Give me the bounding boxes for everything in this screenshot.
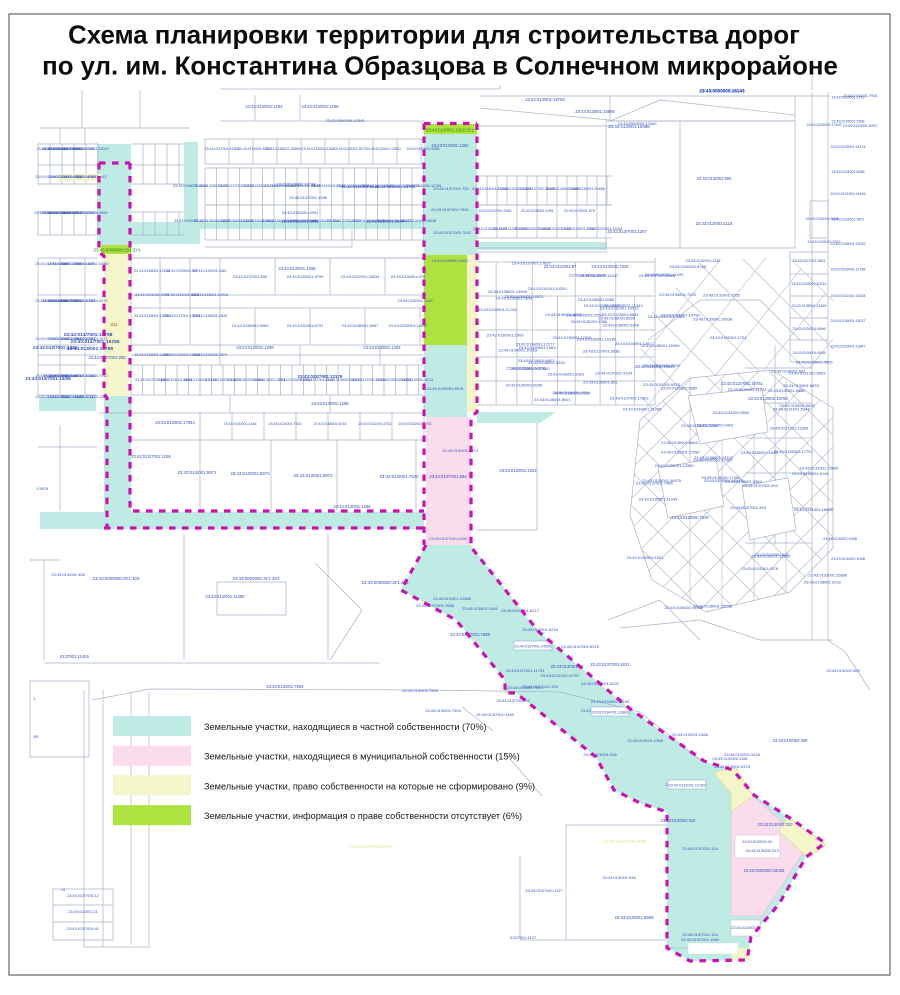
svg-text:23:43:0139001:2467: 23:43:0139001:2467 bbox=[193, 269, 227, 273]
svg-text:23:43:013/7001:494: 23:43:013/7001:494 bbox=[742, 483, 778, 488]
svg-text:23:43:0131001:14757: 23:43:0131001:14757 bbox=[541, 673, 581, 678]
svg-text:23:43:0138001:6521: 23:43:0138001:6521 bbox=[432, 258, 469, 263]
svg-text:23:43:013/7001:16756: 23:43:013/7001:16756 bbox=[71, 339, 120, 345]
svg-text:23:43:0132001:3071: 23:43:0132001:3071 bbox=[334, 147, 367, 151]
svg-text:23:43:0138001:5333: 23:43:0138001:5333 bbox=[528, 360, 565, 365]
svg-text:23:43:013/001:1294: 23:43:013/001:1294 bbox=[245, 104, 283, 109]
svg-text:23:43:0136001:8921: 23:43:0136001:8921 bbox=[534, 397, 571, 402]
svg-text:23:43:0135001:1724: 23:43:0135001:1724 bbox=[710, 335, 747, 340]
svg-text:23:43:013/001:1122: 23:43:013/001:1122 bbox=[397, 298, 433, 303]
svg-text:23:43:0138001:15138: 23:43:0138001:15138 bbox=[577, 337, 617, 342]
svg-text:23:43:0133001:8257: 23:43:0133001:8257 bbox=[843, 124, 878, 128]
svg-text:23:43:013/001:1091: 23:43:013/001:1091 bbox=[462, 606, 498, 611]
svg-text:23:43:013/7001:1127: 23:43:013/7001:1127 bbox=[525, 888, 563, 893]
svg-text:23:43:013/001:5699: 23:43:013/001:5699 bbox=[614, 915, 654, 920]
svg-text:23:43:013/001:7594: 23:43:013/001:7594 bbox=[425, 708, 461, 713]
svg-text:23:43:0139001:847: 23:43:0139001:847 bbox=[755, 552, 790, 557]
svg-text:23:43:0136001:15558: 23:43:0136001:15558 bbox=[693, 603, 733, 608]
svg-text:23:43:0000000:291:ЗУ1: 23:43:0000000:291:ЗУ1 bbox=[94, 248, 141, 253]
svg-text:23:43:013/001:5972: 23:43:013/001:5972 bbox=[293, 473, 333, 478]
svg-text:23:43:0135001:14581: 23:43:0135001:14581 bbox=[389, 323, 429, 328]
svg-text:23:43:0130001:11788: 23:43:0130001:11788 bbox=[831, 268, 866, 272]
svg-text:23:43:013/001:16690: 23:43:013/001:16690 bbox=[575, 109, 615, 114]
svg-text:23:43:013/001:11718: 23:43:013/001:11718 bbox=[276, 182, 316, 187]
svg-text:23:43:0135001:9985: 23:43:0135001:9985 bbox=[661, 385, 698, 390]
svg-text:23:43:0130001:1346: 23:43:0130001:1346 bbox=[224, 422, 257, 426]
svg-text:23:43:013/002:49: 23:43:013/002:49 bbox=[742, 840, 772, 844]
svg-text:23:43:0130001:2091: 23:43:0130001:2091 bbox=[282, 210, 319, 215]
svg-text:23:43:013/001:6833: 23:43:013/001:6833 bbox=[783, 383, 819, 388]
svg-text:23:43:0137001:830: 23:43:0137001:830 bbox=[233, 274, 268, 279]
svg-text:23:43:0137001:15358: 23:43:0137001:15358 bbox=[205, 147, 240, 151]
svg-text:23:43:0130001:13081: 23:43:0130001:13081 bbox=[366, 147, 401, 151]
svg-text:23:43:0000000:16143: 23:43:0000000:16143 bbox=[699, 89, 745, 94]
svg-text:23:43:013/001:7594: 23:43:013/001:7594 bbox=[507, 685, 543, 690]
svg-text:23:43:0133001:6146: 23:43:0133001:6146 bbox=[792, 471, 829, 476]
svg-text:23:43:013/7001:19751: 23:43:013/7001:19751 bbox=[721, 381, 764, 386]
svg-text:23:43:013/7001:14/08: 23:43:013/7001:14/08 bbox=[25, 376, 71, 381]
svg-text:23:43:013/001:1296: 23:43:013/001:1296 bbox=[278, 266, 316, 271]
svg-text:23:43:013/001:7620: 23:43:013/001:7620 bbox=[379, 474, 419, 479]
svg-text:23:43:013/002:309: 23:43:013/002:309 bbox=[826, 668, 860, 673]
svg-text:23:43:0000000:ЗУ1:403: 23:43:0000000:ЗУ1:403 bbox=[93, 576, 140, 581]
svg-text:23:43:0138001:11869: 23:43:0138001:11869 bbox=[792, 304, 827, 308]
svg-text:23:43:013/7001:1267: 23:43:013/7001:1267 bbox=[607, 229, 647, 234]
svg-text:23:43:0135001:14192: 23:43:0135001:14192 bbox=[694, 455, 734, 460]
svg-text:23:43:0139001:2974: 23:43:0139001:2974 bbox=[193, 353, 227, 357]
svg-text:23:43:0136001:12524: 23:43:0136001:12524 bbox=[134, 269, 170, 273]
svg-text:23:43:013/001:1292:ЗУ1: 23:43:013/001:1292:ЗУ1 bbox=[426, 128, 475, 133]
svg-text:23:43:0138001:16969: 23:43:0138001:16969 bbox=[641, 343, 681, 348]
svg-text:23:43:0131001:4488: 23:43:0131001:4488 bbox=[768, 388, 805, 393]
svg-text:23:43:013/7001:12: 23:43:013/7001:12 bbox=[67, 894, 99, 898]
svg-text:23:43:0135001:14310: 23:43:0135001:14310 bbox=[506, 366, 546, 371]
svg-text:23:43:0134001:7945: 23:43:0134001:7945 bbox=[843, 94, 878, 98]
svg-text:23:43:0138001:5485: 23:43:0138001:5485 bbox=[578, 297, 615, 302]
svg-text:23:43:0139001:11273: 23:43:0139001:11273 bbox=[728, 387, 767, 392]
svg-text:23:43:0000000:ЗУ1:403: 23:43:0000000:ЗУ1:403 bbox=[233, 576, 280, 581]
svg-text:23:43:0138001:5657: 23:43:0138001:5657 bbox=[342, 323, 379, 328]
svg-text:23:43:0131001:16895: 23:43:0131001:16895 bbox=[794, 507, 834, 512]
svg-text:23:43:013/001:1296: 23:43:013/001:1296 bbox=[311, 401, 349, 406]
svg-text:23:43:013/001:5973: 23:43:013/001:5973 bbox=[230, 471, 270, 476]
svg-text:23:43:0131001:10253: 23:43:0131001:10253 bbox=[528, 286, 568, 291]
svg-text:23:43:0131001:2932: 23:43:0131001:2932 bbox=[359, 422, 392, 426]
svg-text:1.5976: 1.5976 bbox=[36, 486, 49, 491]
svg-text:23:43:013/7001:1084: 23:43:013/7001:1084 bbox=[681, 937, 720, 942]
svg-text:23:43:0137001:14005: 23:43:0137001:14005 bbox=[515, 645, 552, 649]
svg-text:ЗФ: ЗФ bbox=[33, 734, 38, 739]
svg-text:23:43:0139001:576: 23:43:0139001:576 bbox=[564, 209, 595, 213]
svg-text:23:43:0131001:7392: 23:43:0131001:7392 bbox=[269, 422, 302, 426]
svg-text:23:43:013/001:12488: 23:43:013/001:12488 bbox=[433, 596, 472, 601]
svg-text:23:43:013/7001:6221: 23:43:013/7001:6221 bbox=[590, 662, 630, 667]
svg-text:23:43:013/001:67: 23:43:013/001:67 bbox=[544, 264, 577, 269]
svg-text:23:43:0132001:3184: 23:43:0132001:3184 bbox=[301, 147, 334, 151]
svg-text:23:43:0131001:7355: 23:43:0131001:7355 bbox=[703, 293, 740, 298]
svg-text:23:43:0131001:13354: 23:43:0131001:13354 bbox=[770, 426, 810, 431]
svg-text:23:43:0134001:11268: 23:43:0134001:11268 bbox=[623, 407, 662, 412]
svg-text:23:43:0137001:17302: 23:43:0137001:17302 bbox=[610, 396, 650, 401]
svg-text:23:43:013/7001:1489: 23:43:013/7001:1489 bbox=[476, 712, 515, 717]
svg-text:23:43:0131001:10809: 23:43:0131001:10809 bbox=[799, 466, 839, 471]
svg-text:14: 14 bbox=[61, 888, 65, 892]
svg-text:23:43:0132001:7584: 23:43:0132001:7584 bbox=[42, 147, 78, 151]
svg-text:23:43:0131001:15896: 23:43:0131001:15896 bbox=[808, 573, 848, 578]
svg-text:23:43:013/002:6378: 23:43:013/002:6378 bbox=[714, 764, 750, 769]
svg-text:23:43:013/002:310: 23:43:013/002:310 bbox=[758, 822, 794, 827]
svg-text:23:43:013/7001:7542: 23:43:013/7001:7542 bbox=[433, 230, 472, 235]
svg-text:23:43:0134001:470: 23:43:0134001:470 bbox=[391, 274, 426, 279]
svg-text:23:43:013/001:6832: 23:43:013/001:6832 bbox=[779, 403, 815, 408]
svg-text:23:43:0135001:16638: 23:43:0135001:16638 bbox=[693, 317, 733, 322]
svg-text:23:43:013/7001:6217: 23:43:013/7001:6217 bbox=[501, 608, 540, 613]
svg-text:23:43:0131001:8920: 23:43:0131001:8920 bbox=[341, 184, 379, 189]
svg-text:23:43:0134001:7059: 23:43:0134001:7059 bbox=[42, 299, 77, 303]
svg-text:23:43:0130001:15658: 23:43:0130001:15658 bbox=[569, 187, 605, 191]
svg-text:23:43:0137001:16034: 23:43:0137001:16034 bbox=[341, 274, 381, 279]
svg-text:23:43:013/001:948: 23:43:013/001:948 bbox=[602, 875, 636, 880]
svg-text:23:43:0136001:1009: 23:43:0136001:1009 bbox=[487, 332, 524, 337]
svg-text:23:43:013/001:16750: 23:43:013/001:16750 bbox=[525, 97, 565, 102]
svg-text:23:43:0138001:9463: 23:43:0138001:9463 bbox=[697, 422, 734, 427]
svg-text:23:43:0132001:13019: 23:43:0132001:13019 bbox=[74, 147, 109, 151]
svg-text:23:43:0000000:ЗУ1:403: 23:43:0000000:ЗУ1:403 bbox=[362, 580, 409, 585]
svg-text:23:43:013/002:309: 23:43:013/002:309 bbox=[773, 738, 809, 743]
svg-text:23:43:013/001:21: 23:43:013/001:21 bbox=[68, 910, 98, 914]
svg-text:23:43:013/7001:6219: 23:43:013/7001:6219 bbox=[561, 644, 600, 649]
svg-text:23:43:013/001:7594: 23:43:013/001:7594 bbox=[402, 688, 438, 693]
svg-text:23:43:0136001:861: 23:43:0136001:861 bbox=[583, 380, 618, 385]
svg-text:23:43:013/002:1098: 23:43:013/002:1098 bbox=[831, 557, 865, 561]
svg-text:23:43:013/001:326: 23:43:013/001:326 bbox=[583, 752, 617, 757]
svg-text:23:43:0132001:7912: 23:43:0132001:7912 bbox=[808, 240, 841, 244]
svg-text:23:43:013/001:1299: 23:43:013/001:1299 bbox=[236, 345, 274, 350]
svg-text:23:43:0135001:6035: 23:43:0135001:6035 bbox=[505, 382, 542, 387]
svg-text:23:43:0138001:9218: 23:43:0138001:9218 bbox=[314, 422, 347, 426]
svg-text:23:43:0139001:4571: 23:43:0139001:4571 bbox=[552, 390, 589, 395]
svg-text:23:43:0134001:10653: 23:43:0134001:10653 bbox=[498, 348, 538, 353]
svg-text:23:43:0000000:16063: 23:43:0000000:16063 bbox=[744, 868, 785, 873]
svg-text:23:43:0132001:2353: 23:43:0132001:2353 bbox=[75, 395, 108, 399]
svg-text:23:43:0135001:17757: 23:43:0135001:17757 bbox=[774, 449, 814, 454]
svg-text:23:43:0137001:2529: 23:43:0137001:2529 bbox=[42, 211, 77, 215]
svg-text:23:43:013/7001:594: 23:43:013/7001:594 bbox=[429, 474, 467, 479]
svg-text:23:43:0133001:3799: 23:43:0133001:3799 bbox=[287, 274, 324, 279]
svg-text:23:43:0137001:3831: 23:43:0137001:3831 bbox=[793, 259, 826, 263]
svg-text:23:43:013/7001:1342: 23:43:013/7001:1342 bbox=[33, 345, 78, 350]
svg-text:23:43:0139001:6326: 23:43:0139001:6326 bbox=[793, 351, 826, 355]
svg-text:23:43:013/001:408: 23:43:013/001:408 bbox=[51, 572, 85, 577]
svg-text:23:43:0132001:15519: 23:43:0132001:15519 bbox=[600, 305, 640, 310]
svg-text:23:43:013/7001:752: 23:43:013/7001:752 bbox=[433, 186, 469, 191]
svg-text:23:43:0131001:1578: 23:43:0131001:1578 bbox=[742, 566, 779, 571]
svg-text:23:43:0135001:17492: 23:43:0135001:17492 bbox=[807, 123, 842, 127]
svg-text:23:43:0000000:12540: 23:43:0000000:12540 bbox=[326, 118, 366, 123]
svg-text:23:43:013/001:19750: 23:43:013/001:19750 bbox=[748, 396, 788, 401]
svg-text:23:43:0138001:15689: 23:43:0138001:15689 bbox=[265, 147, 300, 151]
svg-text:Земельные участки, находящиеся: Земельные участки, находящиеся в муницип… bbox=[204, 752, 520, 762]
svg-text:23:43:013/001:1296: 23:43:013/001:1296 bbox=[301, 104, 339, 109]
svg-text:23:43:0133001:14174: 23:43:0133001:14174 bbox=[831, 145, 866, 149]
svg-text:23:43:0131001:6939: 23:43:0131001:6939 bbox=[75, 211, 108, 215]
svg-text:23:43:013/002:1098: 23:43:013/002:1098 bbox=[823, 537, 857, 541]
svg-text:23:43:0134001:17360: 23:43:0134001:17360 bbox=[701, 475, 741, 480]
svg-text:23:43:013/002:1184: 23:43:013/002:1184 bbox=[712, 756, 748, 761]
svg-text:23:43:0137001:2645: 23:43:0137001:2645 bbox=[479, 209, 512, 213]
svg-text:23:43:0130001:9213: 23:43:0130001:9213 bbox=[399, 378, 433, 382]
svg-text:23:43:0133001:11183: 23:43:0133001:11183 bbox=[591, 699, 630, 704]
svg-text:23:43:013/001:1292: 23:43:013/001:1292 bbox=[431, 143, 469, 148]
svg-text:23:43:0139001:1501: 23:43:0139001:1501 bbox=[627, 555, 664, 560]
svg-text:23:43:013/7001:1198: 23:43:013/7001:1198 bbox=[429, 536, 467, 541]
svg-text:23:43:013/7001:12179: 23:43:013/7001:12179 bbox=[298, 374, 343, 379]
svg-text:23:43:013/001:17943: 23:43:013/001:17943 bbox=[155, 420, 195, 425]
svg-text:23:43:0138001:8505: 23:43:0138001:8505 bbox=[598, 316, 635, 321]
svg-text:23:43:013/001:1368: 23:43:013/001:1368 bbox=[672, 732, 708, 737]
svg-text:23:43:0137001:3536: 23:43:0137001:3536 bbox=[583, 349, 620, 354]
svg-text:по ул. им. Константина Образцо: по ул. им. Константина Образцова в Солне… bbox=[42, 53, 838, 81]
svg-text:23:43:013/001:1368: 23:43:013/001:1368 bbox=[627, 738, 663, 743]
svg-text:23:43:0135001:9964: 23:43:0135001:9964 bbox=[232, 323, 269, 328]
svg-text:23:43:0130001:5765: 23:43:0130001:5765 bbox=[669, 264, 706, 269]
svg-text:23:43:013/7001:494: 23:43:013/7001:494 bbox=[730, 505, 766, 510]
svg-text:23:43:013/001:5971: 23:43:013/001:5971 bbox=[177, 470, 217, 475]
svg-text:Земельные участки, право собст: Земельные участки, право собственности н… bbox=[204, 781, 535, 791]
svg-text:23:43:013/002:313: 23:43:013/002:313 bbox=[745, 848, 779, 853]
svg-text:23:43:0136001:1091: 23:43:0136001:1091 bbox=[521, 209, 554, 213]
svg-text:23:43:013/7001:1296: 23:43:013/7001:1296 bbox=[131, 454, 171, 459]
svg-text:23:43:0130001:4505: 23:43:0130001:4505 bbox=[796, 360, 833, 365]
svg-text:23:43:0138001:2018: 23:43:0138001:2018 bbox=[804, 579, 841, 584]
svg-text:23:43:0132001:12189: 23:43:0132001:12189 bbox=[669, 784, 706, 788]
svg-text:23:43:0132001:6737: 23:43:0132001:6737 bbox=[287, 323, 324, 328]
svg-text:23:43:013/001:7619: 23:43:013/001:7619 bbox=[671, 515, 709, 520]
svg-text:23:43:013/7001:5808: 23:43:013/7001:5808 bbox=[349, 844, 393, 849]
svg-text:23:43:0131001:3070: 23:43:0131001:3070 bbox=[135, 293, 169, 297]
svg-text:23:43:0137001:11703: 23:43:0137001:11703 bbox=[506, 668, 545, 673]
svg-text:23:43:0136001:1829: 23:43:0136001:1829 bbox=[741, 450, 778, 455]
svg-text:23:43:0134001:9800: 23:43:0134001:9800 bbox=[712, 410, 749, 415]
svg-text:013/7001:1127: 013/7001:1127 bbox=[510, 935, 537, 940]
svg-text:Земельные участки, информация: Земельные участки, информация о праве со… bbox=[204, 811, 522, 821]
svg-text:23:43:0130001:5875: 23:43:0130001:5875 bbox=[366, 219, 404, 224]
svg-text:23:43:0134001:413: 23:43:0134001:413 bbox=[76, 175, 107, 179]
svg-text:23:43:0132001:9606: 23:43:0132001:9606 bbox=[806, 217, 839, 221]
svg-text:23:43:0136001:14704: 23:43:0136001:14704 bbox=[375, 184, 415, 189]
svg-text:23:43:0131001:12004: 23:43:0131001:12004 bbox=[831, 294, 866, 298]
svg-text:23:43:013/7001:41: 23:43:013/7001:41 bbox=[67, 927, 99, 931]
svg-text:23:43:0130001:8978: 23:43:0130001:8978 bbox=[427, 386, 464, 391]
svg-text:23:43:013/7001:5809: 23:43:013/7001:5809 bbox=[603, 839, 647, 844]
svg-text:23:43:0136001:15027: 23:43:0136001:15027 bbox=[831, 319, 866, 323]
svg-text:23:43:0130001:6662: 23:43:0130001:6662 bbox=[661, 440, 698, 445]
svg-text:23:43:0132001:7792: 23:43:0132001:7792 bbox=[399, 422, 432, 426]
svg-text:23:43:013/7001:7541: 23:43:013/7001:7541 bbox=[431, 207, 470, 212]
svg-text:23:43:0135001:13380: 23:43:0135001:13380 bbox=[655, 463, 695, 468]
svg-text:0137001:11426: 0137001:11426 bbox=[60, 654, 89, 659]
svg-text:23:43:0135001:11939: 23:43:0135001:11939 bbox=[639, 497, 678, 502]
svg-text:23:43:0138001:8310: 23:43:0138001:8310 bbox=[548, 372, 585, 377]
svg-text:23:43:0133001:2081: 23:43:0133001:2081 bbox=[281, 219, 319, 224]
svg-text:23:43:0131001:13038: 23:43:0131001:13038 bbox=[400, 219, 436, 223]
svg-text:23:43:0131001:15446: 23:43:0131001:15446 bbox=[831, 192, 866, 196]
svg-text:23:43:0130001:12447: 23:43:0130001:12447 bbox=[579, 273, 619, 278]
svg-text:311: 311 bbox=[110, 322, 118, 327]
svg-text:23:43:0134001:11429: 23:43:0134001:11429 bbox=[645, 272, 684, 277]
svg-text:23:43:0131001:7089: 23:43:0131001:7089 bbox=[648, 314, 685, 319]
svg-text:23:43:013/7001:292: 23:43:013/7001:292 bbox=[88, 355, 126, 360]
svg-text:23:43:0137001:7086: 23:43:0137001:7086 bbox=[636, 481, 673, 486]
svg-text:23:43:0138001:10212: 23:43:0138001:10212 bbox=[792, 282, 827, 286]
svg-text:23:43:0138001:2845: 23:43:0138001:2845 bbox=[193, 314, 227, 318]
svg-text:Земельные участки, находящиеся: Земельные участки, находящиеся в частной… bbox=[204, 722, 487, 732]
svg-text:23:43:013/001:1022: 23:43:013/001:1022 bbox=[499, 468, 537, 473]
svg-text:23:43:013/001:995: 23:43:013/001:995 bbox=[697, 176, 733, 181]
svg-text:23:43:013/7001:1296: 23:43:013/7001:1296 bbox=[289, 195, 328, 200]
svg-text:23:43:013/7001:104: 23:43:013/7001:104 bbox=[682, 846, 718, 851]
svg-text:23:43:0136001:681: 23:43:0136001:681 bbox=[771, 368, 806, 373]
svg-text:23:43:0133001:8275: 23:43:0133001:8275 bbox=[75, 299, 108, 303]
svg-text:23:43:013/001:1296: 23:43:013/001:1296 bbox=[333, 504, 371, 509]
svg-text:23:43:0136001:10918: 23:43:0136001:10918 bbox=[192, 293, 228, 297]
svg-text:23:43:0132001:17567: 23:43:0132001:17567 bbox=[661, 449, 701, 454]
svg-text:23:43:013/001:1302: 23:43:013/001:1302 bbox=[363, 345, 401, 350]
svg-text:23:43:0139001:11706: 23:43:0139001:11706 bbox=[478, 307, 517, 312]
svg-text:23:43:0137001:3154: 23:43:0137001:3154 bbox=[595, 370, 632, 375]
svg-text:23:43:013/001:1118: 23:43:013/001:1118 bbox=[686, 258, 722, 263]
svg-text:23:43:013/001:7330: 23:43:013/001:7330 bbox=[591, 264, 629, 269]
svg-text:23:43:013/001:5973: 23:43:013/001:5973 bbox=[442, 448, 478, 453]
svg-text:23:43:0138001:14523: 23:43:0138001:14523 bbox=[504, 294, 544, 299]
svg-text:23:43:0134001:8996: 23:43:0134001:8996 bbox=[793, 327, 826, 331]
svg-text:23:43:0000000:12540: 23:43:0000000:12540 bbox=[618, 121, 658, 126]
svg-text:23:43:013/7001:7598: 23:43:013/7001:7598 bbox=[416, 603, 455, 608]
svg-text:23:43:0134001:8085: 23:43:0134001:8085 bbox=[832, 170, 865, 174]
svg-text:Схема планировки территории дл: Схема планировки территории для строител… bbox=[68, 22, 800, 50]
svg-text:23:43:0134001:12883: 23:43:0134001:12883 bbox=[592, 711, 629, 715]
svg-text:23:43:013/001:1118: 23:43:013/001:1118 bbox=[696, 221, 733, 226]
svg-text:23:43:013/001:7594: 23:43:013/001:7594 bbox=[266, 684, 304, 689]
svg-text:23:43:0138001:5316: 23:43:0138001:5316 bbox=[602, 323, 639, 328]
svg-text:23:43:013/001:19621: 23:43:013/001:19621 bbox=[635, 364, 675, 369]
svg-text:23:43:0130001:7253: 23:43:0130001:7253 bbox=[659, 292, 696, 297]
svg-text:23:43:0139001:13847: 23:43:0139001:13847 bbox=[831, 344, 866, 348]
